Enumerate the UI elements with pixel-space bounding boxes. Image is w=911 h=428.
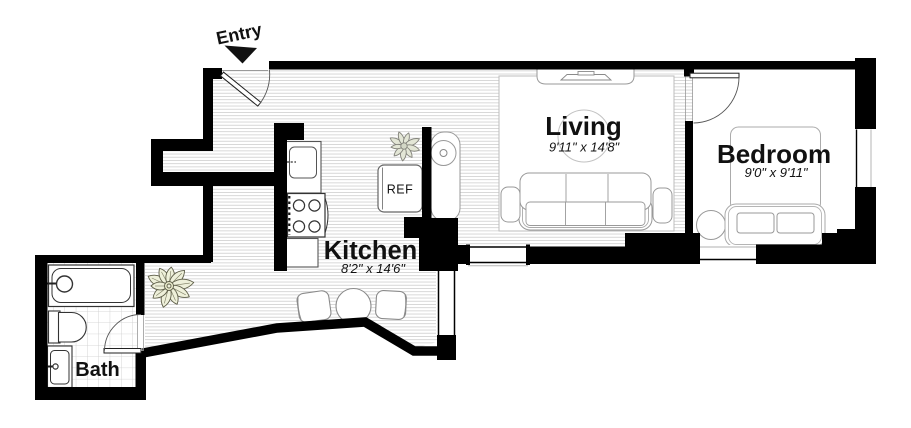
svg-text:8'2" x 14'6": 8'2" x 14'6" [341, 261, 406, 276]
svg-text:Entry: Entry [214, 19, 263, 48]
svg-text:Living: Living [545, 111, 622, 141]
svg-text:REF: REF [387, 183, 414, 197]
svg-text:Bath: Bath [75, 359, 119, 381]
svg-text:9'0" x 9'11": 9'0" x 9'11" [744, 165, 808, 180]
svg-text:9'11" x 14'8": 9'11" x 14'8" [549, 140, 621, 155]
